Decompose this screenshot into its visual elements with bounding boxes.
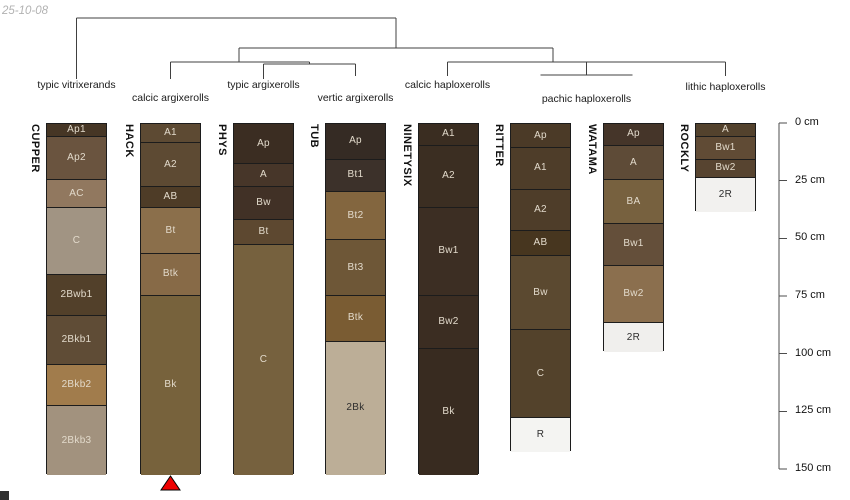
profile-column-hack: A1A2ABBtBtkBk xyxy=(140,123,201,474)
horizon-ninetysix-a2: A2 xyxy=(419,145,478,207)
horizon-hack-a2: A2 xyxy=(141,142,200,186)
horizon-label: 2Bkb2 xyxy=(62,380,92,390)
horizon-ninetysix-bw1: Bw1 xyxy=(419,207,478,295)
horizon-hack-bk: Bk xyxy=(141,295,200,475)
horizon-cupper-ap2: Ap2 xyxy=(47,136,106,180)
horizon-cupper-2bkb1: 2Bkb1 xyxy=(47,315,106,363)
depth-tick-label: 125 cm xyxy=(795,405,831,416)
horizon-tub-bt3: Bt3 xyxy=(326,239,385,294)
horizon-label: Bw xyxy=(256,198,271,208)
horizon-label: Bw2 xyxy=(623,289,643,299)
horizon-label: A xyxy=(722,125,729,135)
profile-column-cupper: Ap1Ap2ACC2Bwb12Bkb12Bkb22Bkb3 xyxy=(46,123,107,474)
horizon-cupper-ap1: Ap1 xyxy=(47,124,106,136)
horizon-label: Bw1 xyxy=(623,239,643,249)
horizon-label: Btk xyxy=(163,269,178,279)
horizon-rockly-bw1: Bw1 xyxy=(696,136,755,159)
horizon-label: Ap xyxy=(534,131,547,141)
horizon-label: Bt1 xyxy=(348,170,364,180)
horizon-label: Bw xyxy=(533,288,548,298)
horizon-phys-bw: Bw xyxy=(234,186,293,218)
horizon-label: Bw2 xyxy=(438,317,458,327)
horizon-label: Bw1 xyxy=(715,143,735,153)
horizon-label: Bw1 xyxy=(438,246,458,256)
horizon-label: Bk xyxy=(442,407,454,417)
horizon-ritter-a2: A2 xyxy=(511,189,570,231)
profile-column-rockly: ABw1Bw22R xyxy=(695,123,756,211)
profile-name-cupper: CUPPER xyxy=(29,124,40,173)
profile-name-ninetysix: NINETYSIX xyxy=(401,124,412,187)
depth-tick-label: 75 cm xyxy=(795,290,825,301)
profile-name-phys: PHYS xyxy=(216,124,227,156)
horizon-label: A xyxy=(630,158,637,168)
horizon-watama-ap: Ap xyxy=(604,124,663,145)
profile-name-ritter: RITTER xyxy=(493,124,504,167)
profile-column-tub: ApBt1Bt2Bt3Btk2Bk xyxy=(325,123,386,474)
horizon-phys-c: C xyxy=(234,244,293,475)
horizon-label: BA xyxy=(627,197,641,207)
horizon-label: Bk xyxy=(164,380,176,390)
horizon-watama-ba: BA xyxy=(604,179,663,223)
horizon-label: Bt xyxy=(258,227,268,237)
horizon-label: A xyxy=(260,170,267,180)
profile-name-watama: WATAMA xyxy=(586,124,597,175)
horizon-ninetysix-bw2: Bw2 xyxy=(419,295,478,348)
soil-profile-dendrogram-figure: 25-10-08 typic vitrixerandscalcic argixe… xyxy=(0,0,850,500)
depth-tick-label: 100 cm xyxy=(795,348,831,359)
horizon-label: 2Bk xyxy=(346,403,364,413)
horizon-ritter-a1: A1 xyxy=(511,147,570,189)
horizon-label: Bt3 xyxy=(348,263,364,273)
horizon-label: 2R xyxy=(719,190,732,200)
horizon-label: 2Bkb1 xyxy=(62,335,92,345)
horizon-label: C xyxy=(537,369,545,379)
cluster-label: calcic haploxerolls xyxy=(405,80,490,91)
horizon-label: AB xyxy=(534,238,548,248)
horizon-label: C xyxy=(73,236,81,246)
horizon-ritter-ap: Ap xyxy=(511,124,570,147)
horizon-rockly-a: A xyxy=(696,124,755,136)
profile-name-hack: HACK xyxy=(123,124,134,158)
horizon-hack-ab: AB xyxy=(141,186,200,207)
horizon-watama-bw1: Bw1 xyxy=(604,223,663,265)
horizon-label: C xyxy=(260,355,268,365)
horizon-label: Ap xyxy=(349,136,362,146)
cluster-label: lithic haploxerolls xyxy=(686,82,766,93)
horizon-label: Ap xyxy=(627,129,640,139)
cluster-label: pachic haploxerolls xyxy=(542,94,631,105)
horizon-tub-bt1: Bt1 xyxy=(326,159,385,191)
horizon-cupper-2bwb1: 2Bwb1 xyxy=(47,274,106,316)
profile-column-phys: ApABwBtC xyxy=(233,123,294,474)
horizon-rockly-bw2: Bw2 xyxy=(696,159,755,177)
horizon-label: 2Bkb3 xyxy=(62,436,92,446)
horizon-tub-bt2: Bt2 xyxy=(326,191,385,239)
horizon-label: 2R xyxy=(627,333,640,343)
horizon-label: A1 xyxy=(164,128,177,138)
horizon-label: A2 xyxy=(164,160,177,170)
horizon-hack-btk: Btk xyxy=(141,253,200,295)
horizon-hack-a1: A1 xyxy=(141,124,200,142)
horizon-label: Bt xyxy=(165,226,175,236)
horizon-label: Ap xyxy=(257,139,270,149)
cluster-label: calcic argixerolls xyxy=(132,93,209,104)
horizon-ritter-bw: Bw xyxy=(511,255,570,329)
profile-column-ninetysix: A1A2Bw1Bw2Bk xyxy=(418,123,479,474)
profile-column-ritter: ApA1A2ABBwCR xyxy=(510,123,571,451)
horizon-ninetysix-bk: Bk xyxy=(419,348,478,475)
horizon-label: AB xyxy=(164,192,178,202)
horizon-label: A2 xyxy=(442,171,455,181)
horizon-cupper-2bkb2: 2Bkb2 xyxy=(47,364,106,406)
profile-column-watama: ApABABw1Bw22R xyxy=(603,123,664,351)
horizon-watama-bw2: Bw2 xyxy=(604,265,663,323)
profile-name-tub: TUB xyxy=(308,124,319,148)
cluster-label: typic argixerolls xyxy=(227,80,299,91)
marker-triangle xyxy=(161,476,180,490)
depth-tick-label: 0 cm xyxy=(795,117,819,128)
depth-tick-label: 50 cm xyxy=(795,232,825,243)
horizon-cupper-c: C xyxy=(47,207,106,274)
horizon-ritter-r: R xyxy=(511,417,570,452)
profile-name-rockly: ROCKLY xyxy=(678,124,689,172)
horizon-label: Bt2 xyxy=(348,211,364,221)
cluster-label: vertic argixerolls xyxy=(318,93,394,104)
corner-mark xyxy=(0,491,9,500)
horizon-label: AC xyxy=(69,189,84,199)
horizon-cupper-2bkb3: 2Bkb3 xyxy=(47,405,106,474)
horizon-label: Ap1 xyxy=(67,125,86,135)
horizon-label: R xyxy=(537,430,545,440)
horizon-cupper-ac: AC xyxy=(47,179,106,207)
horizon-label: 2Bwb1 xyxy=(60,290,92,300)
depth-tick-label: 150 cm xyxy=(795,463,831,474)
horizon-hack-bt: Bt xyxy=(141,207,200,253)
horizon-ritter-c: C xyxy=(511,329,570,417)
horizon-rockly-2r: 2R xyxy=(696,177,755,212)
horizon-ritter-ab: AB xyxy=(511,230,570,255)
horizon-watama-a: A xyxy=(604,145,663,180)
horizon-label: A2 xyxy=(534,205,547,215)
depth-tick-label: 25 cm xyxy=(795,175,825,186)
horizon-tub-btk: Btk xyxy=(326,295,385,341)
horizon-watama-2r: 2R xyxy=(604,322,663,352)
horizon-label: A1 xyxy=(534,163,547,173)
horizon-ninetysix-a1: A1 xyxy=(419,124,478,145)
horizon-label: A1 xyxy=(442,129,455,139)
horizon-label: Bw2 xyxy=(715,163,735,173)
cluster-label: typic vitrixerands xyxy=(37,80,115,91)
horizon-tub-ap: Ap xyxy=(326,124,385,159)
horizon-tub-2bk: 2Bk xyxy=(326,341,385,475)
horizon-label: Btk xyxy=(348,313,363,323)
horizon-phys-a: A xyxy=(234,163,293,186)
horizon-label: Ap2 xyxy=(67,153,86,163)
horizon-phys-ap: Ap xyxy=(234,124,293,163)
horizon-phys-bt: Bt xyxy=(234,219,293,244)
